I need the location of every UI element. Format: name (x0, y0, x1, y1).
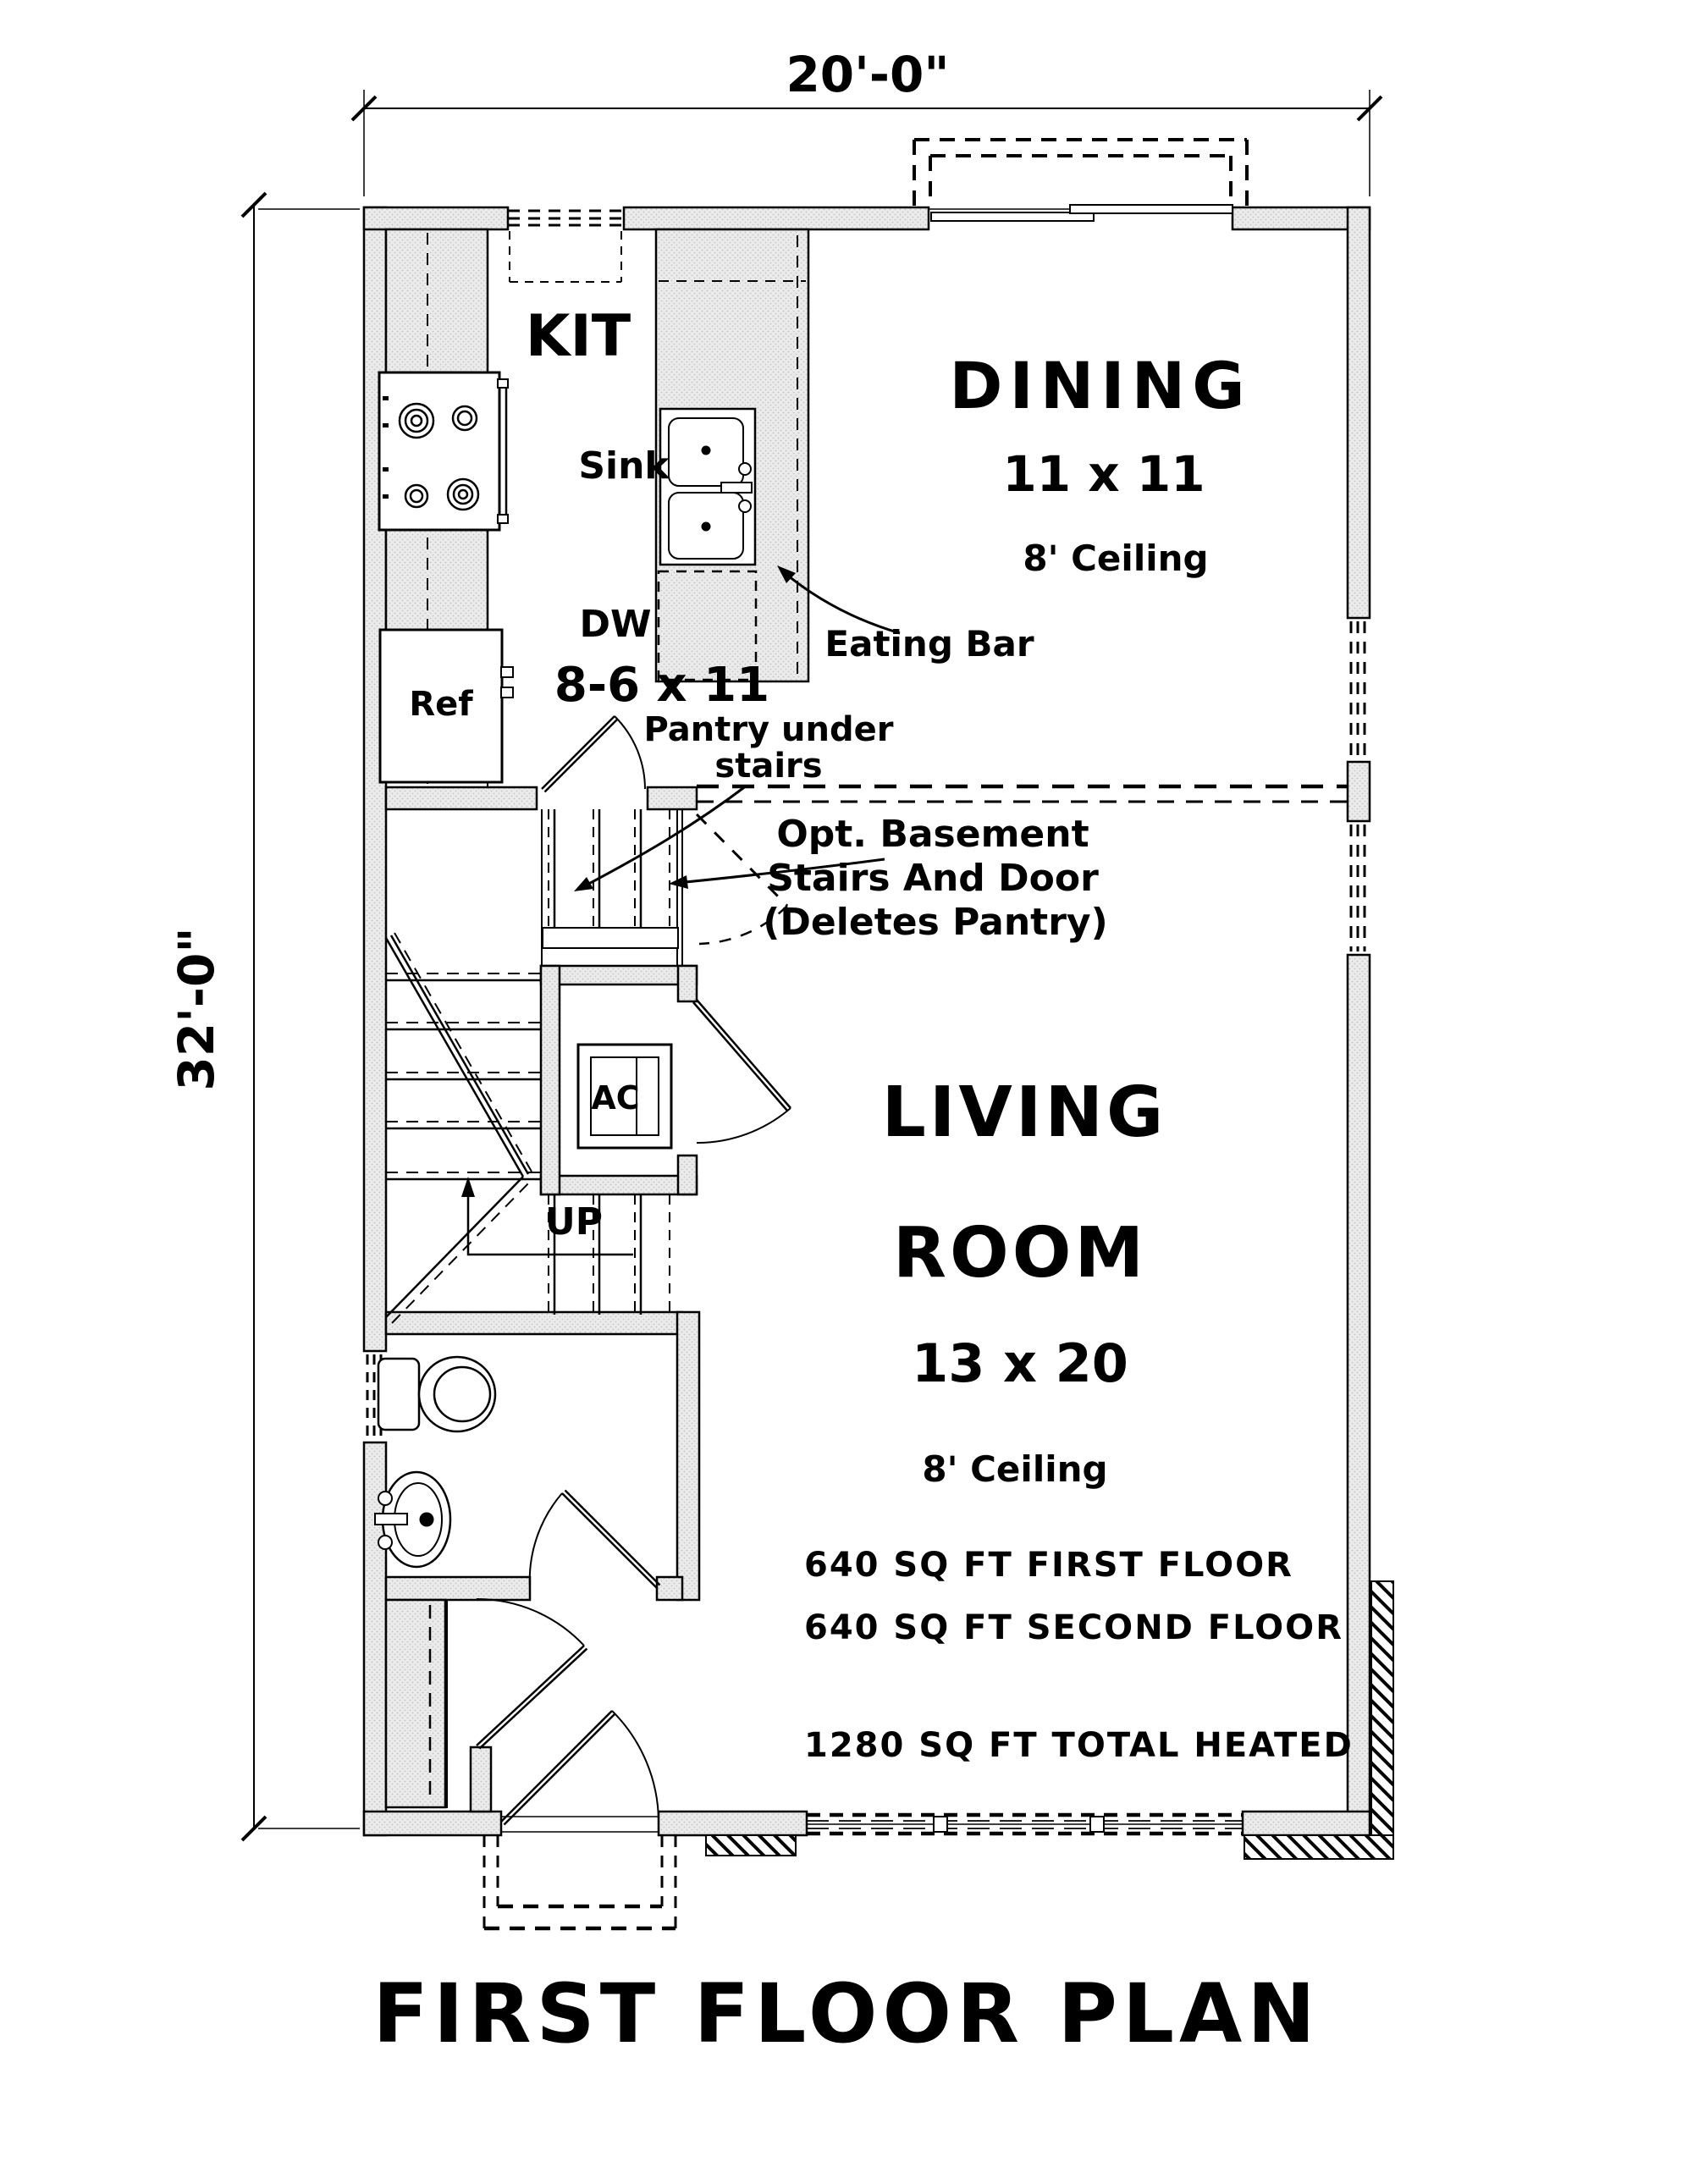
ac-label: AC (591, 1079, 639, 1117)
window-bottom-living (807, 1815, 1243, 1834)
living-ceiling-label: 8' Ceiling (922, 1448, 1107, 1490)
dining-label: DINING (949, 348, 1251, 423)
dishwasher-label: DW (579, 603, 651, 646)
area-first-floor: 640 SQ FT FIRST FLOOR (804, 1546, 1293, 1585)
stove (379, 372, 508, 530)
pantry-door (542, 716, 645, 792)
entry-door (501, 1711, 659, 1832)
pantry-note-line2: stairs (714, 747, 822, 786)
dimension-top-label: 20'-0" (786, 46, 949, 103)
area-second-floor: 640 SQ FT SECOND FLOOR (804, 1608, 1343, 1647)
page-title: FIRST FLOOR PLAN (372, 1966, 1320, 2061)
living-label-line1: LIVING (882, 1073, 1167, 1153)
dimension-top (352, 90, 1381, 196)
window-top-kitchen (508, 211, 624, 225)
window-jambs-top (508, 207, 624, 229)
window-right-dining-2 (1351, 825, 1365, 951)
eating-bar-label: Eating Bar (824, 623, 1034, 665)
sliding-door-top (929, 205, 1233, 221)
floor-plan-page: 20'-0" 32'-0" (0, 0, 1693, 2184)
pantry-note-line1: Pantry under (644, 710, 894, 749)
ac-closet-door (693, 1000, 791, 1143)
ceiling-break-dashes (697, 786, 1348, 802)
basement-note-line2: Stairs And Door (767, 857, 1099, 900)
living-label-line2: ROOM (893, 1213, 1147, 1293)
area-summary: 640 SQ FT FIRST FLOOR 640 SQ FT SECOND F… (804, 1546, 1354, 1765)
toilet (378, 1357, 495, 1431)
dimension-left-label: 32'-0" (168, 927, 225, 1090)
entry-closet (386, 1600, 446, 1808)
bathroom-door (530, 1491, 660, 1589)
dimension-left (242, 193, 360, 1840)
area-total-heated: 1280 SQ FT TOTAL HEATED (804, 1726, 1354, 1765)
dining-ceiling-label: 8' Ceiling (1023, 538, 1208, 579)
floor-plan-drawing: 20'-0" 32'-0" (0, 0, 1693, 2184)
closet-door (477, 1599, 587, 1749)
kitchen-sink (660, 409, 755, 565)
sink-label: Sink (578, 444, 670, 488)
window-right-dining-1 (1351, 621, 1365, 758)
up-label: UP (545, 1200, 603, 1244)
basement-note-line3: (Deletes Pantry) (763, 901, 1107, 944)
kitchen-size-label: 8-6 x 11 (554, 658, 769, 713)
living-size-label: 13 x 20 (912, 1332, 1128, 1394)
stoop-outline (484, 1835, 676, 1932)
porch-outline (914, 140, 1247, 206)
kitchen-window-bay-dashes (510, 231, 621, 282)
kitchen-label: KIT (526, 303, 631, 370)
refrigerator-label: Ref (409, 685, 473, 724)
dining-size-label: 11 x 11 (1002, 445, 1205, 503)
basement-note-line1: Opt. Basement (776, 813, 1089, 856)
